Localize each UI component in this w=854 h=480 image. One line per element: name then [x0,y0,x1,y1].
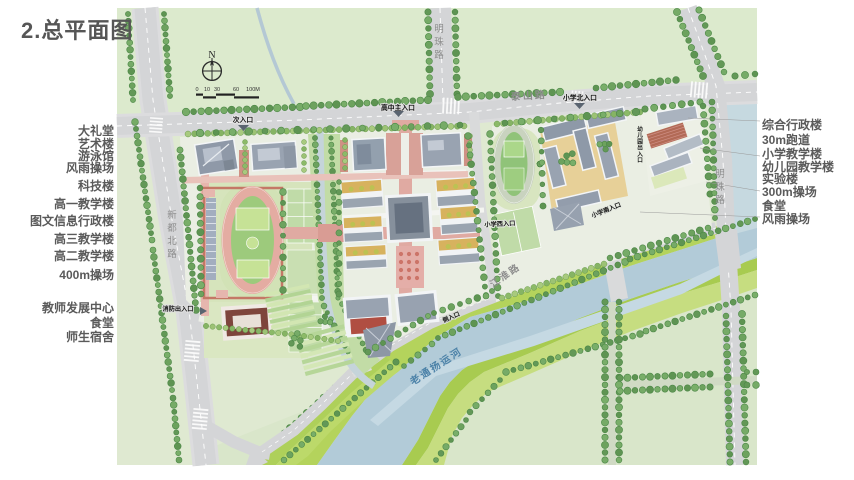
svg-text:明: 明 [434,24,444,35]
svg-text:入: 入 [636,151,643,158]
svg-text:小学北入口: 小学北入口 [562,93,597,102]
svg-text:明: 明 [715,169,725,180]
svg-text:0: 0 [195,87,198,93]
svg-text:口: 口 [637,157,643,164]
svg-text:路: 路 [715,194,725,206]
svg-text:珠: 珠 [434,36,444,48]
svg-text:珠: 珠 [715,181,725,193]
svg-text:60: 60 [233,87,239,93]
svg-text:10: 10 [204,87,210,93]
svg-text:新: 新 [167,209,177,221]
svg-text:100M: 100M [246,87,260,93]
svg-text:儿: 儿 [636,131,643,139]
svg-text:30: 30 [214,87,220,93]
svg-text:北: 北 [167,236,177,247]
svg-text:路: 路 [434,49,444,61]
svg-text:路: 路 [167,248,177,260]
svg-text:出: 出 [637,144,643,152]
svg-text:次入口: 次入口 [233,115,254,124]
svg-text:N: N [208,50,215,61]
svg-text:园: 园 [637,137,643,145]
svg-text:幼: 幼 [637,125,643,133]
svg-text:小学西入口: 小学西入口 [483,219,515,229]
svg-text:消防出入口: 消防出入口 [163,305,194,313]
svg-text:高中主入口: 高中主入口 [381,103,415,112]
svg-text:都: 都 [167,223,177,234]
